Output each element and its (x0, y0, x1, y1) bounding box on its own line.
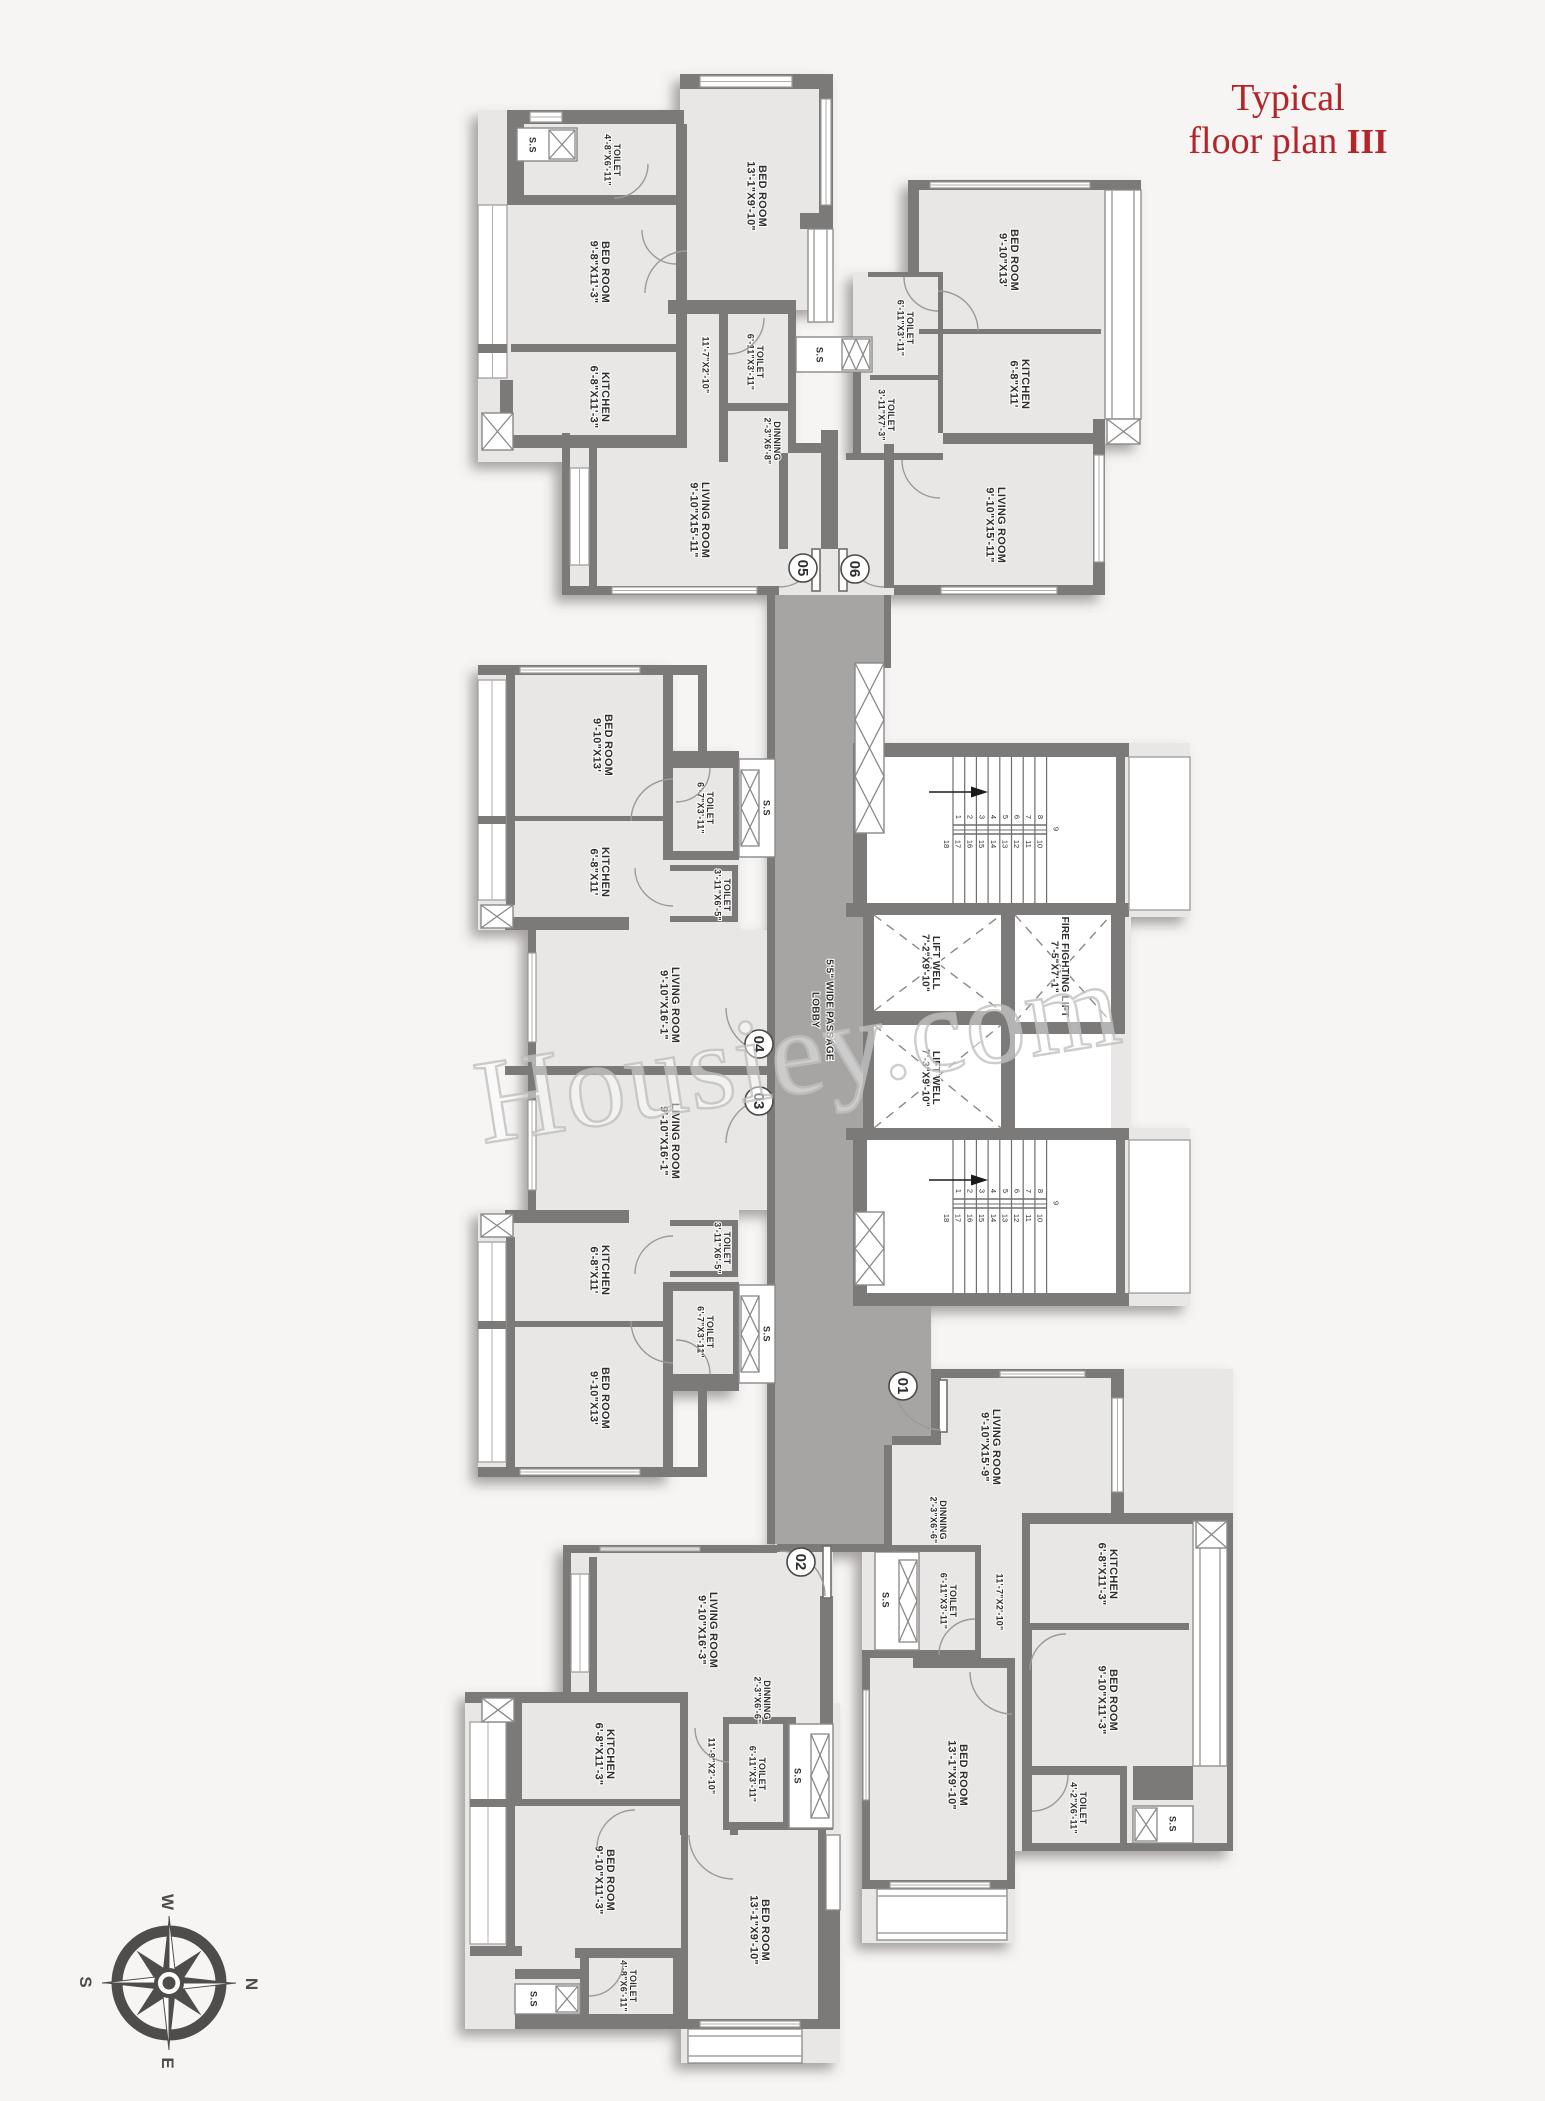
svg-text:2: 2 (966, 815, 975, 819)
svg-text:15: 15 (977, 840, 986, 848)
svg-text:BED ROOM9'-10"X13': BED ROOM9'-10"X13' (997, 229, 1021, 291)
svg-text:E: E (158, 2057, 177, 2068)
svg-text:9: 9 (1052, 1201, 1061, 1205)
svg-text:S.S: S.S (881, 1592, 891, 1608)
svg-text:BED ROOM13'-1"X9'-10": BED ROOM13'-1"X9'-10" (748, 1895, 772, 1965)
svg-text:Typical: Typical (1231, 77, 1344, 119)
svg-text:14: 14 (989, 840, 998, 848)
svg-text:3: 3 (977, 815, 986, 819)
svg-text:8: 8 (1036, 1189, 1045, 1193)
svg-text:BED ROOM13'-1"X9'-10": BED ROOM13'-1"X9'-10" (745, 161, 769, 231)
svg-text:12: 12 (1012, 840, 1021, 848)
svg-text:11: 11 (1024, 840, 1033, 848)
svg-text:14: 14 (989, 1214, 998, 1222)
svg-text:KITCHEN6'-8"X11'-3": KITCHEN6'-8"X11'-3" (588, 366, 612, 429)
svg-text:13: 13 (1001, 1214, 1010, 1222)
svg-text:KITCHEN6'-8"X11': KITCHEN6'-8"X11' (588, 1245, 612, 1295)
svg-text:17: 17 (954, 1214, 963, 1222)
svg-text:8: 8 (1036, 815, 1045, 819)
svg-text:LIVING ROOM9'-10"X15'-11": LIVING ROOM9'-10"X15'-11" (984, 487, 1008, 563)
svg-text:10: 10 (1036, 840, 1045, 848)
svg-text:LIVING ROOM9'-10"X15'-11": LIVING ROOM9'-10"X15'-11" (688, 482, 712, 558)
svg-text:KITCHEN6'-8"X11': KITCHEN6'-8"X11' (1008, 359, 1032, 409)
svg-text:6: 6 (1013, 815, 1022, 819)
svg-text:S.S: S.S (528, 137, 538, 153)
svg-text:05: 05 (794, 560, 811, 577)
svg-text:01: 01 (894, 1378, 911, 1395)
svg-text:7: 7 (1024, 1189, 1033, 1193)
svg-text:9: 9 (1052, 827, 1061, 831)
svg-text:2: 2 (966, 1189, 975, 1193)
svg-text:11'-7"X2'-10": 11'-7"X2'-10" (995, 1574, 1005, 1631)
svg-text:KITCHEN6'-8"X11': KITCHEN6'-8"X11' (588, 847, 612, 897)
svg-text:W: W (158, 1894, 177, 1911)
svg-text:BED ROOM9'-10"X13': BED ROOM9'-10"X13' (591, 714, 615, 776)
svg-text:7: 7 (1024, 815, 1033, 819)
svg-text:KITCHEN6'-8"X11'-3": KITCHEN6'-8"X11'-3" (1096, 1543, 1120, 1606)
svg-text:LIVING ROOM9'-10"X16'-3": LIVING ROOM9'-10"X16'-3" (696, 1592, 720, 1668)
svg-text:13: 13 (1001, 840, 1010, 848)
svg-text:BED ROOM13'-1"X9'-10": BED ROOM13'-1"X9'-10" (946, 1740, 970, 1810)
svg-text:1: 1 (954, 1189, 963, 1193)
svg-text:S: S (76, 1976, 95, 1987)
svg-text:N: N (242, 1978, 261, 1990)
svg-text:S.S: S.S (793, 1768, 803, 1784)
svg-text:4: 4 (989, 815, 998, 819)
svg-text:BED ROOM9'-10"X13': BED ROOM9'-10"X13' (588, 1367, 612, 1429)
svg-text:3: 3 (977, 1189, 986, 1193)
svg-text:15: 15 (977, 1214, 986, 1222)
svg-text:12: 12 (1012, 1214, 1021, 1222)
svg-text:BED ROOM9'-10"X11'-3": BED ROOM9'-10"X11'-3" (1096, 1665, 1120, 1734)
svg-text:4: 4 (989, 1189, 998, 1193)
svg-text:BED ROOM9'-10"X11'-3": BED ROOM9'-10"X11'-3" (593, 1845, 617, 1914)
svg-text:floor plan III: floor plan III (1188, 120, 1387, 162)
svg-text:16: 16 (965, 1214, 974, 1222)
svg-text:1: 1 (954, 815, 963, 819)
svg-text:10: 10 (1036, 1214, 1045, 1222)
svg-text:S.S: S.S (762, 800, 772, 816)
svg-text:5: 5 (1001, 1189, 1010, 1193)
svg-text:17: 17 (954, 840, 963, 848)
svg-text:02: 02 (792, 1554, 809, 1571)
svg-text:06: 06 (846, 561, 863, 578)
svg-text:6: 6 (1013, 1189, 1022, 1193)
svg-text:18: 18 (942, 1214, 951, 1222)
svg-text:S.S: S.S (762, 1326, 772, 1342)
svg-text:S.S: S.S (1168, 1816, 1178, 1832)
svg-text:16: 16 (965, 840, 974, 848)
svg-text:S.S: S.S (815, 347, 825, 363)
svg-text:LIVING ROOM9'-10"X15'-9": LIVING ROOM9'-10"X15'-9" (979, 1409, 1003, 1485)
svg-text:DINNING2'-3"X6'-6": DINNING2'-3"X6'-6" (753, 1676, 773, 1723)
svg-text:11: 11 (1024, 1214, 1033, 1222)
svg-text:18: 18 (942, 840, 951, 848)
svg-text:11'-9"X2'-10": 11'-9"X2'-10" (707, 1738, 717, 1795)
svg-text:BED ROOM9'-8"X11'-3": BED ROOM9'-8"X11'-3" (588, 241, 612, 304)
svg-text:DINNING2'-3"X6'-6": DINNING2'-3"X6'-6" (929, 1496, 949, 1543)
svg-text:KITCHEN6'-8"X11'-3": KITCHEN6'-8"X11'-3" (593, 1723, 617, 1786)
svg-text:11'-7"X2'-10": 11'-7"X2'-10" (701, 337, 711, 394)
svg-text:DINNING2'-3"X6'-8": DINNING2'-3"X6'-8" (763, 417, 783, 464)
svg-text:5: 5 (1001, 815, 1010, 819)
svg-text:S.S: S.S (529, 1991, 539, 2007)
